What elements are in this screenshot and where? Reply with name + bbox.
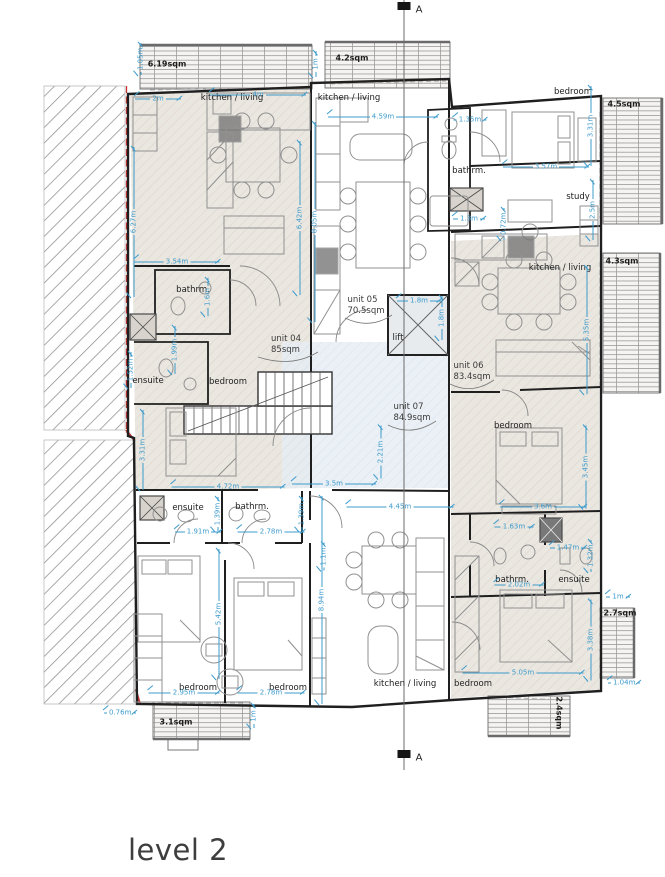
drawing-title: level 2: [128, 833, 228, 867]
lift-shaft: [388, 295, 448, 355]
floor-plan: kitchen / livingkitchen / livingbedroomb…: [0, 0, 665, 877]
plan-drawing: [0, 0, 665, 877]
site-hatch: [44, 86, 137, 704]
